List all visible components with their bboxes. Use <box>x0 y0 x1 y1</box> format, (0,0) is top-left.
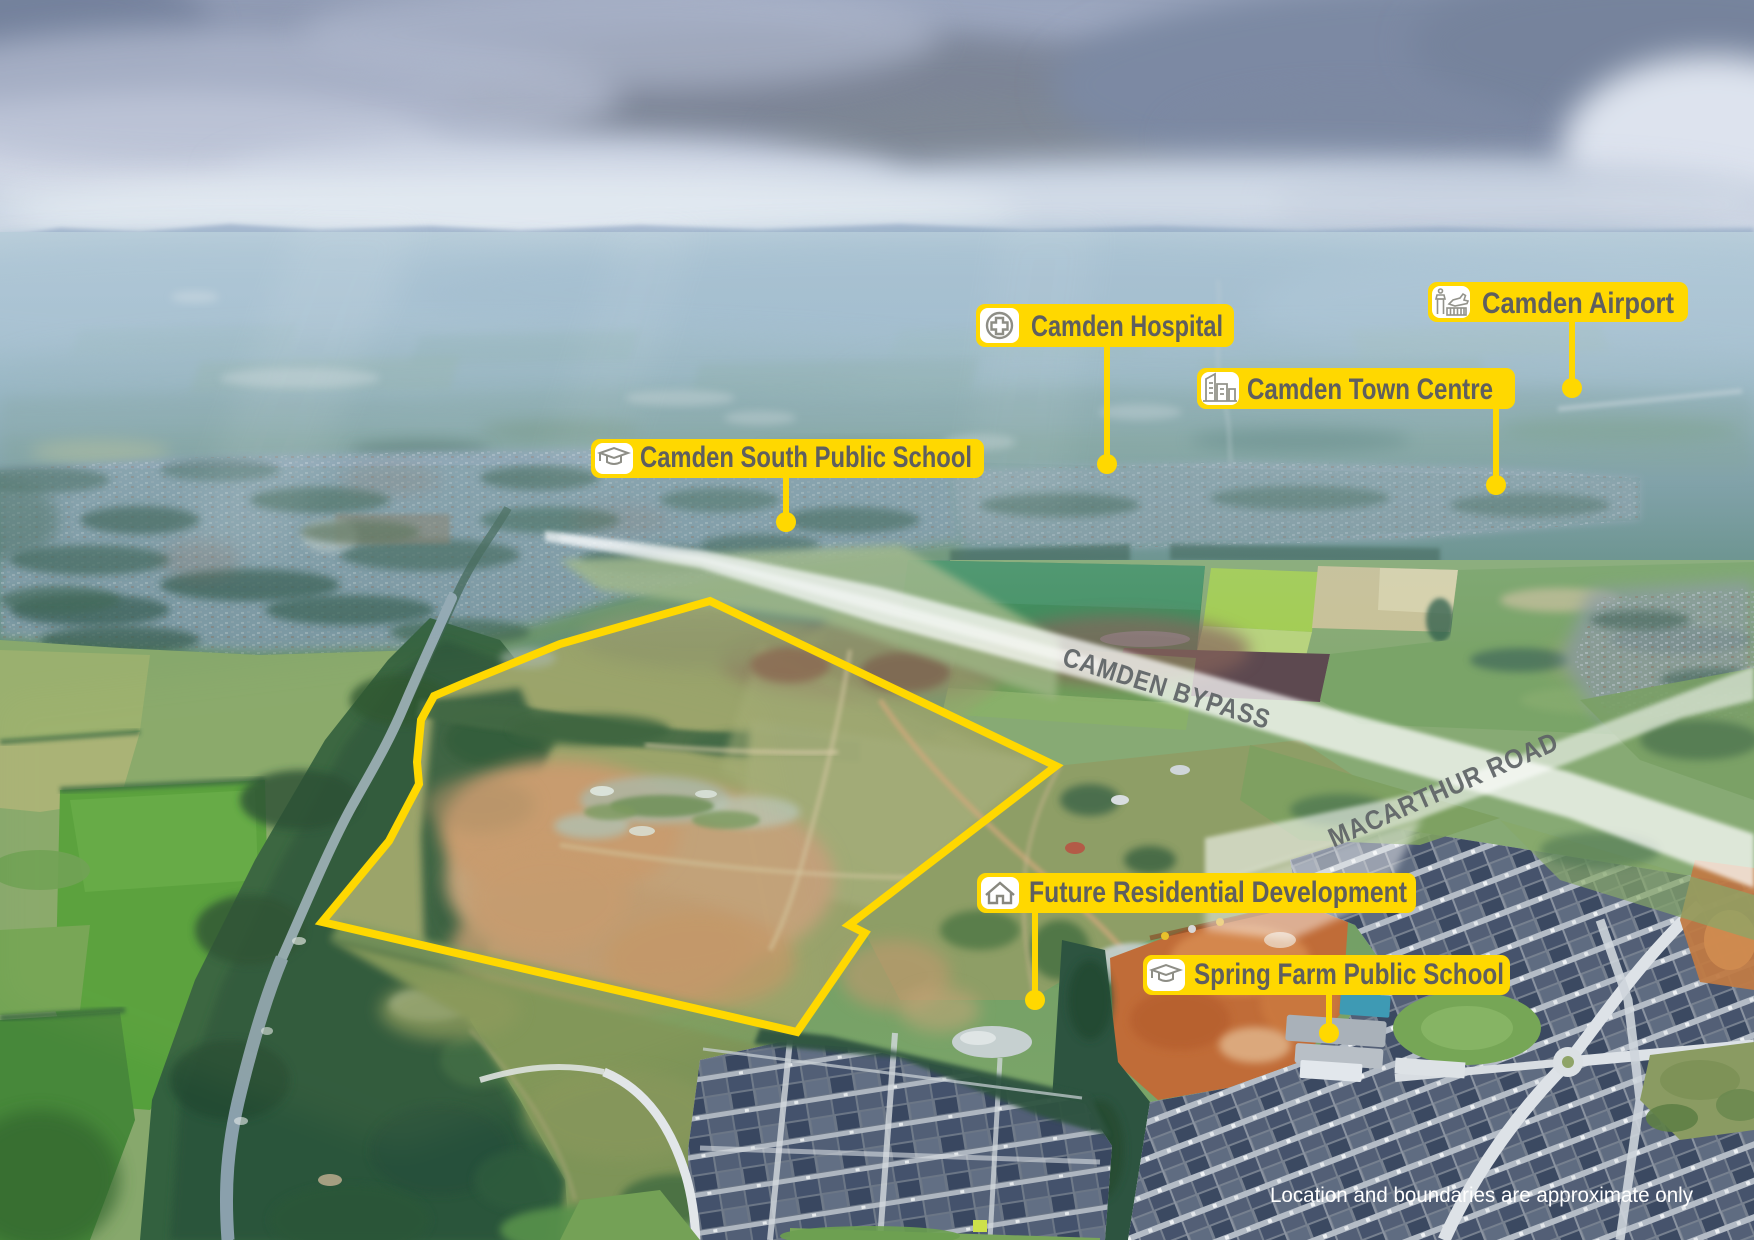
svg-text:Camden Town Centre: Camden Town Centre <box>1247 373 1493 406</box>
svg-text:Location and boundaries are ap: Location and boundaries are approximate … <box>1270 1184 1693 1207</box>
svg-text:Camden South Public School: Camden South Public School <box>640 441 972 474</box>
svg-text:Camden Hospital: Camden Hospital <box>1031 310 1223 343</box>
svg-text:Future Residential Development: Future Residential Development <box>1029 876 1407 909</box>
svg-text:Camden Airport: Camden Airport <box>1482 287 1674 320</box>
svg-text:Spring Farm Public School: Spring Farm Public School <box>1194 958 1504 991</box>
